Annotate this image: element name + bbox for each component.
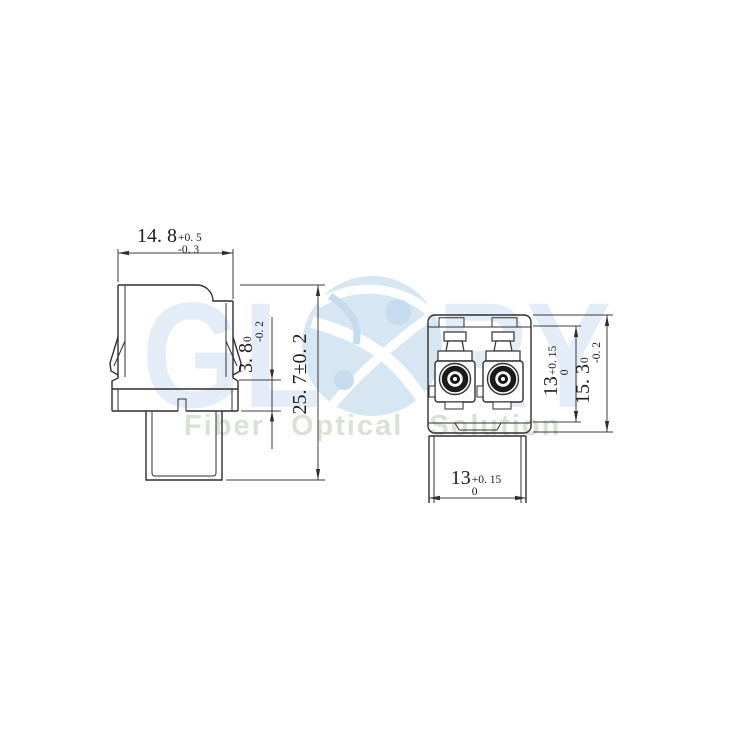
dim-overall-height: 25. 7±0. 2: [290, 334, 310, 415]
dim-body-width: 13+0. 150: [451, 468, 502, 498]
dim-top-width: 14. 8+0. 5-0. 3: [137, 226, 202, 256]
dim-body-height: 15. 30-0. 2: [573, 342, 603, 404]
globe-icon: [0, 0, 730, 730]
watermark-tagline: Fiber Optical Solution: [184, 410, 561, 443]
technical-drawing-canvas: GL RY Fiber Optical Solution: [0, 0, 730, 730]
dim-latch-section-height: 3. 80-0. 2: [236, 321, 266, 373]
dim-port-field-height: 13+0. 150: [541, 346, 571, 397]
